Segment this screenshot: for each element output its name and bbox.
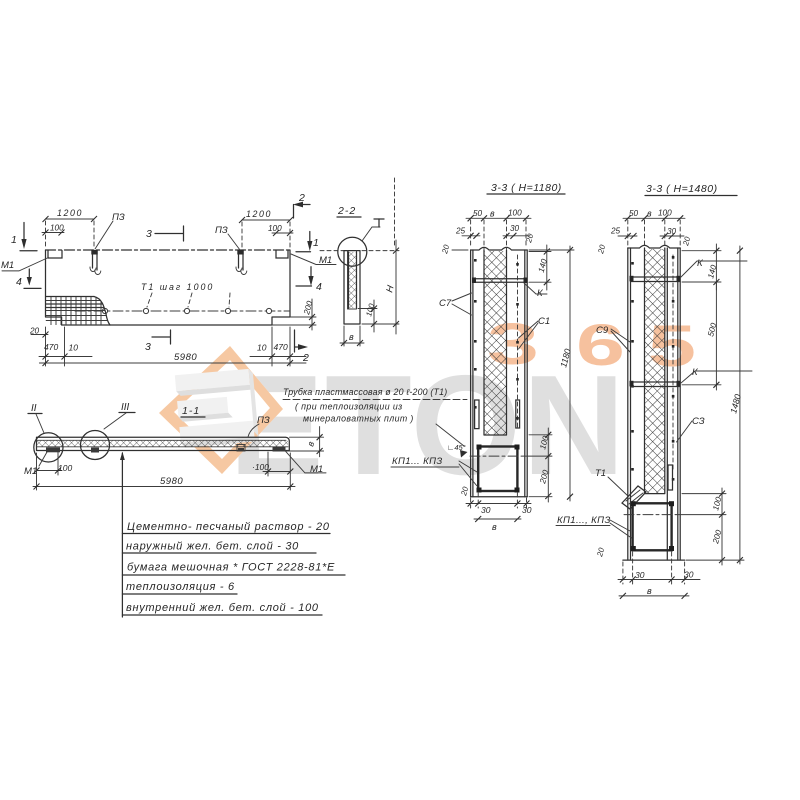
- svg-text:1-1: 1-1: [182, 405, 200, 417]
- svg-text:6: 6: [576, 313, 625, 378]
- svg-text:1: 1: [11, 234, 17, 246]
- svg-text:30: 30: [684, 570, 694, 580]
- svg-text:ПЗ: ПЗ: [215, 225, 228, 236]
- svg-text:С1: С1: [538, 316, 550, 327]
- svg-text:10: 10: [69, 343, 79, 353]
- svg-text:Цементно- песчаный раствор -: Цементно- песчаный раствор - 20: [127, 521, 330, 533]
- svg-text:Трубка пластмассовая ø 20 ℓ-20: Трубка пластмассовая ø 20 ℓ-200 (Т1): [283, 387, 447, 397]
- svg-text:470: 470: [44, 342, 58, 352]
- svg-text:2: 2: [302, 352, 309, 364]
- svg-text:20: 20: [29, 327, 40, 336]
- svg-text:5980: 5980: [160, 476, 183, 487]
- svg-text:в: в: [349, 332, 354, 342]
- svg-text:100: 100: [50, 224, 64, 233]
- svg-text:1: 1: [313, 237, 319, 249]
- svg-text:30: 30: [510, 224, 520, 233]
- svg-text:Т1 шаг 1000: Т1 шаг 1000: [141, 282, 214, 292]
- svg-text:1200: 1200: [246, 209, 272, 219]
- svg-text:25: 25: [610, 227, 621, 236]
- svg-text:4: 4: [316, 281, 322, 293]
- svg-text:КП1..., КПЗ: КП1..., КПЗ: [557, 515, 611, 526]
- svg-text:4: 4: [16, 276, 22, 288]
- svg-text:в: в: [647, 209, 652, 219]
- svg-text:минераловатных плит ): минераловатных плит ): [303, 414, 414, 424]
- svg-text:наружный жел. бет. слой - 30: наружный жел. бет. слой - 30: [126, 541, 299, 553]
- svg-text:3: 3: [146, 228, 152, 240]
- svg-text:в: в: [490, 209, 495, 219]
- svg-text:30: 30: [522, 505, 532, 515]
- svg-text:II: II: [31, 403, 37, 414]
- svg-text:ПЗ: ПЗ: [112, 212, 125, 223]
- svg-text:50: 50: [473, 209, 483, 218]
- svg-text:∟45°: ∟45°: [447, 443, 466, 452]
- svg-text:в: в: [492, 522, 497, 532]
- svg-text:50: 50: [629, 209, 639, 218]
- svg-text:КП1... КПЗ: КП1... КПЗ: [392, 456, 443, 467]
- svg-text:( при теплоизоляции из: ( при теплоизоляции из: [295, 402, 403, 412]
- svg-text:100: 100: [508, 209, 522, 218]
- svg-text:внутренний жел. бет. слой -: внутренний жел. бет. слой - 100: [126, 602, 319, 614]
- svg-text:Т1: Т1: [595, 468, 606, 479]
- svg-text:3-3 ( Н=1180): 3-3 ( Н=1180): [491, 182, 562, 194]
- svg-text:100: 100: [658, 209, 672, 218]
- svg-text:СЗ: СЗ: [692, 416, 705, 427]
- svg-text:С7: С7: [439, 298, 452, 309]
- svg-text:100: 100: [268, 224, 282, 233]
- svg-text:30: 30: [481, 505, 491, 515]
- svg-text:2-2: 2-2: [337, 205, 356, 217]
- svg-text:100: 100: [58, 463, 72, 473]
- svg-text:теплоизоляция - 6: теплоизоляция - 6: [126, 581, 235, 593]
- svg-text:3-3 ( Н=1480): 3-3 ( Н=1480): [646, 183, 718, 195]
- svg-text:470: 470: [274, 342, 288, 352]
- svg-text:ETON: ETON: [229, 346, 627, 505]
- svg-text:1200: 1200: [57, 208, 83, 218]
- svg-text:30: 30: [667, 227, 677, 236]
- svg-text:25: 25: [455, 227, 466, 236]
- svg-text:бумага мешочная * ГОСТ 2228-8: бумага мешочная * ГОСТ 2228-81*Е: [127, 562, 335, 574]
- svg-text:М1: М1: [1, 260, 14, 271]
- svg-text:III: III: [121, 402, 130, 413]
- svg-text:5980: 5980: [174, 352, 197, 363]
- svg-text:в: в: [647, 586, 652, 596]
- svg-text:3: 3: [145, 341, 151, 353]
- svg-text:·100: ·100: [252, 462, 269, 472]
- svg-text:10: 10: [257, 343, 267, 353]
- svg-text:С9: С9: [596, 325, 609, 336]
- svg-text:30: 30: [635, 570, 645, 580]
